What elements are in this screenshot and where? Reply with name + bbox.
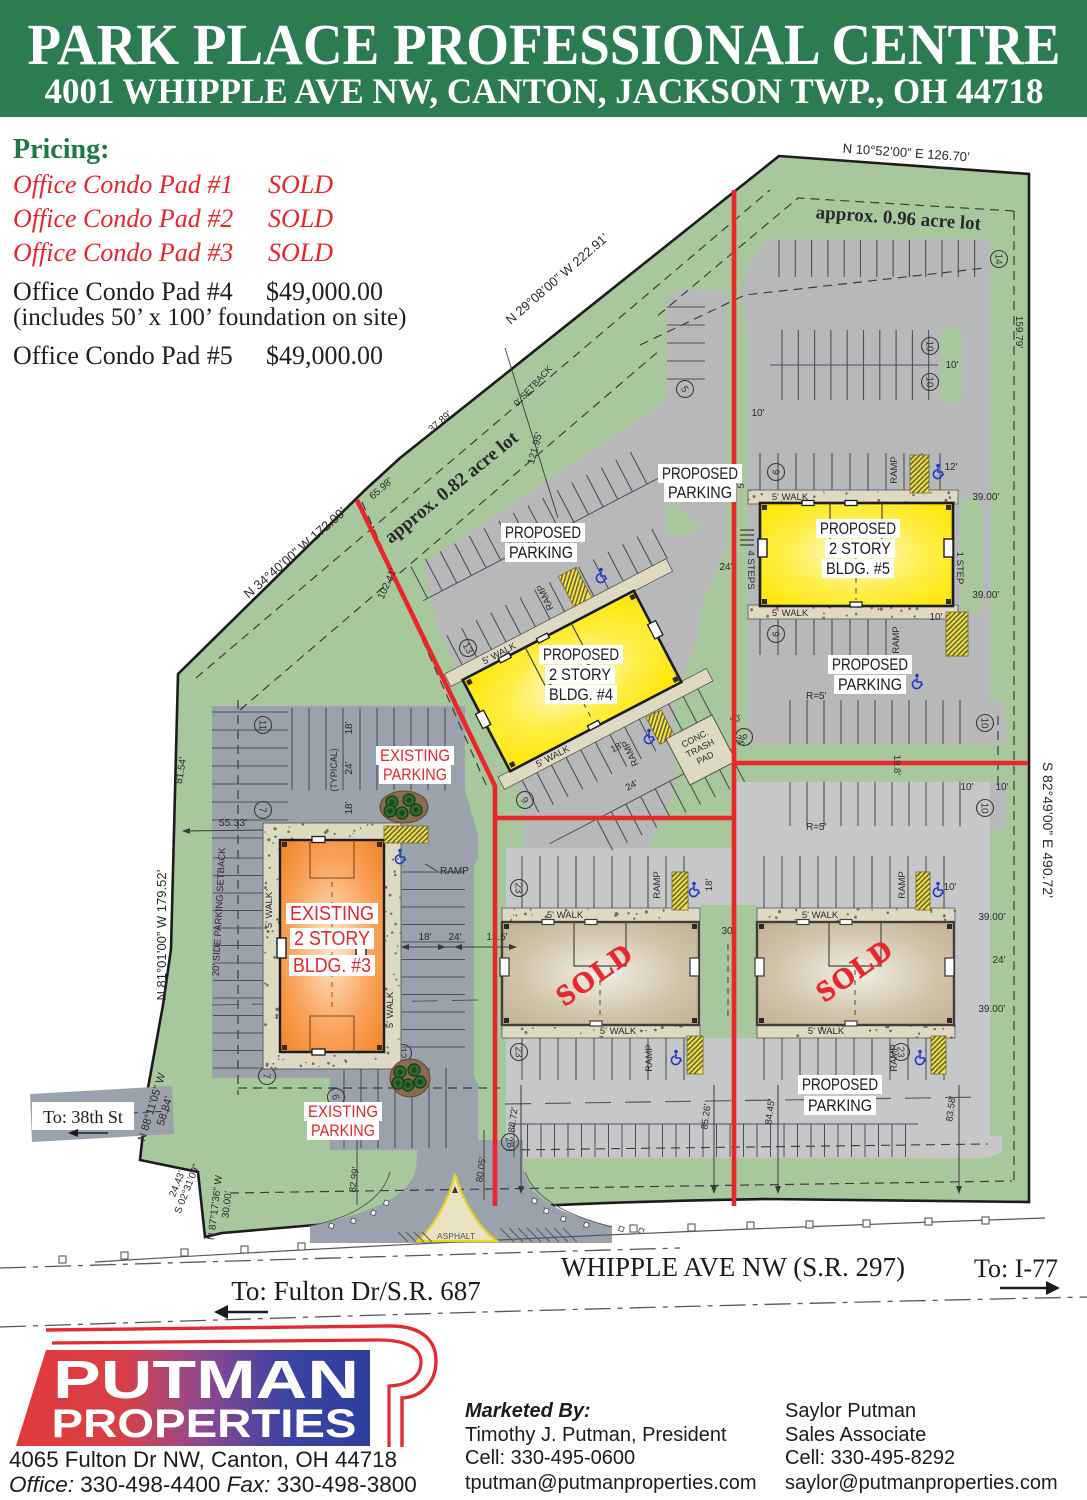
svg-text:9: 9 [769,631,780,637]
svg-text:Office Condo Pad #2: Office Condo Pad #2 [13,204,233,233]
svg-text:RAMP: RAMP [889,1044,900,1071]
svg-text:R=5': R=5' [806,822,827,833]
svg-text:RAMP: RAMP [644,1044,655,1071]
svg-text:R=5': R=5' [806,691,827,702]
svg-text:39.00’: 39.00’ [972,590,999,601]
svg-text:5' WALK: 5' WALK [772,492,809,503]
svg-text:10': 10' [960,782,973,793]
svg-text:10': 10' [995,782,1008,793]
svg-text:7: 7 [256,807,267,813]
svg-text:39.00’: 39.00’ [972,492,999,503]
svg-text:18': 18' [344,721,355,734]
svg-text:10': 10' [929,612,942,623]
svg-text:18': 18' [704,879,715,892]
svg-text:10: 10 [978,802,989,814]
svg-text:EXISTING: EXISTING [380,746,450,765]
svg-text:tputman@putmanproperties.com: tputman@putmanproperties.com [465,1472,757,1494]
svg-text:RAMP: RAMP [889,456,900,483]
svg-text:PARKING: PARKING [668,483,732,502]
svg-text:BLDG. #3: BLDG. #3 [293,955,371,977]
svg-text:$49,000.00: $49,000.00 [266,277,383,306]
svg-text:159.79': 159.79' [1013,316,1024,349]
svg-text:24': 24' [719,562,732,573]
svg-text:To: 38th St: To: 38th St [43,1107,123,1127]
svg-text:PARKING: PARKING [509,543,573,562]
svg-text:Cell: 330-495-8292: Cell: 330-495-8292 [785,1447,955,1469]
svg-text:Office Condo Pad #3: Office Condo Pad #3 [13,238,233,267]
svg-text:39.00’: 39.00’ [978,1004,1005,1015]
svg-text:PROPOSED: PROPOSED [543,645,619,664]
svg-text:55.33': 55.33' [219,817,247,829]
svg-text:SOLD: SOLD [268,238,333,267]
svg-text:PROPOSED: PROPOSED [832,655,908,674]
svg-text:23: 23 [512,1046,523,1058]
svg-text:PROPOSED: PROPOSED [505,523,581,542]
svg-text:10: 10 [923,340,934,352]
svg-text:4065 Fulton Dr NW, Canton, OH: 4065 Fulton Dr NW, Canton, OH 44718 [9,1447,397,1472]
svg-text:PARKING: PARKING [311,1121,375,1140]
svg-text:12': 12' [944,462,957,473]
svg-text:Pricing:: Pricing: [13,134,109,165]
svg-text:2 STORY: 2 STORY [294,928,370,950]
svg-text:RAMP: RAMP [652,871,663,898]
svg-text:10: 10 [923,376,934,388]
svg-text:WHIPPLE AVE NW (S.R. 297): WHIPPLE AVE NW (S.R. 297) [561,1252,905,1282]
svg-text:Office Condo Pad #4: Office Condo Pad #4 [13,277,233,306]
svg-text:EXISTING: EXISTING [290,903,374,925]
svg-text:EXISTING: EXISTING [308,1102,378,1121]
svg-text:saylor@putmanproperties.com: saylor@putmanproperties.com [785,1472,1058,1494]
svg-text:24': 24' [448,932,461,943]
svg-text:PROPOSED: PROPOSED [820,519,896,538]
svg-text:To: Fulton Dr/S.R. 687: To: Fulton Dr/S.R. 687 [231,1276,480,1306]
svg-text:10: 10 [978,717,989,729]
svg-text:1 STEP: 1 STEP [954,552,965,585]
svg-text:SOLD: SOLD [268,204,333,233]
svg-text:(includes 50’ x 100’ foundatio: (includes 50’ x 100’ foundation on site) [13,304,406,331]
svg-text:Sales Associate: Sales Associate [785,1424,926,1446]
svg-text:BLDG. #5: BLDG. #5 [826,559,890,578]
svg-text:PROPOSED: PROPOSED [662,464,738,483]
svg-text:14: 14 [992,253,1003,265]
svg-text:PARK PLACE PROFESSIONAL CENTRE: PARK PLACE PROFESSIONAL CENTRE [28,12,1061,77]
svg-text:Office Condo Pad #1: Office Condo Pad #1 [13,170,233,199]
svg-text:5' WALK: 5' WALK [600,1026,637,1037]
svg-text:5' WALK: 5' WALK [808,1026,845,1037]
svg-text:23: 23 [512,882,523,894]
svg-text:PARKING: PARKING [383,765,447,784]
svg-text:18': 18' [418,932,431,943]
svg-text:19.8': 19.8' [891,755,902,775]
svg-text:2 STORY: 2 STORY [829,539,891,558]
svg-text:39.00’: 39.00’ [978,912,1005,923]
svg-text:9: 9 [769,469,780,475]
svg-text:Timothy J. Putman, President: Timothy J. Putman, President [465,1424,727,1446]
svg-text:5' WALK: 5' WALK [264,891,275,928]
svg-text:Marketed By:: Marketed By: [465,1400,591,1422]
svg-text:10': 10' [945,360,958,371]
svg-text:(TYPICAL): (TYPICAL) [329,748,339,792]
svg-text:Saylor Putman: Saylor Putman [785,1400,916,1422]
svg-text:4 STEPS: 4 STEPS [745,550,756,589]
svg-text:SOLD: SOLD [268,170,333,199]
svg-text:Office Condo Pad #5: Office Condo Pad #5 [13,341,233,370]
svg-text:24': 24' [344,761,355,774]
svg-text:18': 18' [344,801,355,814]
svg-text:PARKING: PARKING [808,1096,872,1115]
svg-text:Office: 330-498-4400 Fax: 3: Office: 330-498-4400 Fax: 330-498-3800 [9,1472,417,1497]
svg-text:Cell: 330-495-0600: Cell: 330-495-0600 [465,1447,635,1469]
svg-text:PUTMAN: PUTMAN [53,1350,359,1410]
svg-text:PARKING: PARKING [838,675,902,694]
svg-text:BLDG. #4: BLDG. #4 [549,685,613,704]
svg-text:RAMP: RAMP [891,626,902,653]
svg-text:RAMP: RAMP [897,871,908,898]
svg-text:PROPOSED: PROPOSED [802,1075,878,1094]
svg-text:11: 11 [256,720,267,731]
svg-text:RAMP: RAMP [440,866,469,877]
svg-text:S 82°49’00” E 490.72’: S 82°49’00” E 490.72’ [1040,762,1056,898]
svg-text:ASPHALT: ASPHALT [437,1231,475,1241]
svg-text:4001 WHIPPLE AVE NW, CANTON, J: 4001 WHIPPLE AVE NW, CANTON, JACKSON TWP… [45,71,1044,111]
svg-text:To: I-77: To: I-77 [974,1254,1058,1283]
svg-text:$49,000.00: $49,000.00 [266,341,383,370]
svg-text:5' WALK: 5' WALK [385,991,396,1028]
svg-text:5' WALK: 5' WALK [772,608,809,619]
svg-text:7: 7 [260,1073,271,1079]
svg-text:PROPERTIES: PROPERTIES [52,1402,357,1446]
svg-text:24': 24' [992,955,1005,966]
svg-text:N 81°01’00” W 179.52’: N 81°01’00” W 179.52’ [154,869,169,1000]
svg-text:10': 10' [751,408,764,419]
svg-text:2 STORY: 2 STORY [549,665,611,684]
svg-text:10': 10' [943,882,956,893]
